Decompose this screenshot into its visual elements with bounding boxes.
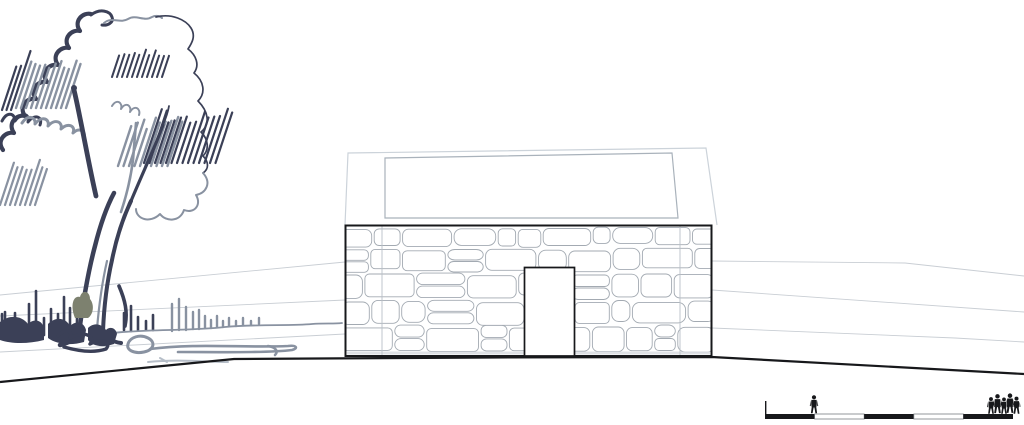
scale-bar-segment — [864, 414, 914, 419]
branch-tip — [71, 85, 77, 91]
scale-bar-segment — [914, 414, 964, 419]
drawing-svg — [0, 0, 1024, 425]
scale-bar-segments — [765, 414, 1013, 419]
door-opening — [525, 268, 575, 357]
scale-bar-segment — [815, 414, 865, 419]
scale-bar-segment — [963, 414, 1013, 419]
scale-bar-segment — [765, 414, 815, 419]
elevation-drawing — [0, 0, 1024, 425]
base-blob — [0, 317, 44, 343]
stone-wall — [337, 226, 715, 357]
